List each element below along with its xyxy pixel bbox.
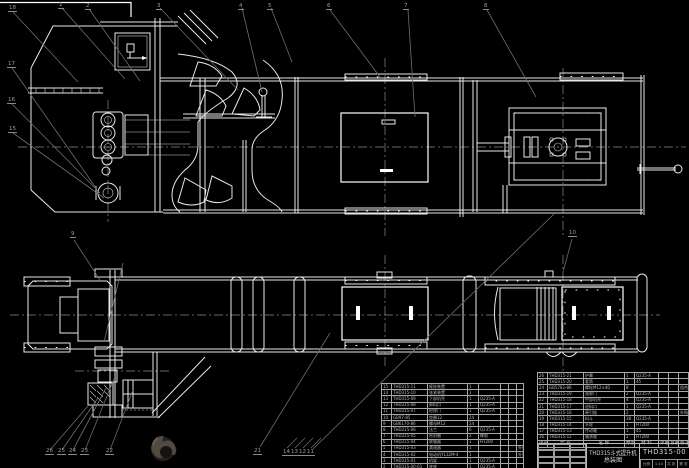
- meta-cell: 1:10: [652, 460, 664, 468]
- drawing-number: THD315-00: [640, 444, 689, 459]
- balloon-label: 2: [85, 4, 91, 10]
- bom-cell: [501, 464, 509, 468]
- bom-cell: 2: [382, 464, 392, 468]
- balloon-label: 10: [568, 231, 577, 237]
- head-drive-section: [460, 73, 682, 217]
- bom-table-left: 15THD315-11尾轮装置114THD315-10张紧装置113THD315…: [381, 383, 524, 468]
- drawing-title-cell: THD315斗式提升机 总装图: [586, 444, 640, 468]
- balloon-label: 6: [326, 4, 332, 10]
- revision-grid: [538, 444, 586, 468]
- balloon-label: 22: [105, 449, 114, 455]
- balloon-label: 26: [45, 449, 54, 455]
- head-section-plan: [485, 271, 623, 357]
- inlet-box: [115, 33, 150, 70]
- balloon-label: 17: [7, 62, 16, 68]
- balloon-label: 7: [403, 4, 409, 10]
- front-elevation-view: [18, 10, 686, 236]
- bom-cell: 1: [468, 464, 479, 468]
- balloon-label: 15: [8, 127, 17, 133]
- balloon-label: 11: [306, 450, 315, 456]
- meta-cell: 第 张: [677, 460, 689, 468]
- balloon-label: 3: [156, 4, 162, 10]
- inspection-door-front: [341, 74, 428, 214]
- bom-cell: [509, 464, 517, 468]
- bom-cell: Q235-A: [479, 464, 501, 468]
- balloon-label: 9: [70, 232, 76, 238]
- balloon-label: 24: [68, 449, 77, 455]
- sheet-name: 总装图: [604, 457, 623, 464]
- boot-casing: [28, 26, 163, 212]
- balloon-label: 18: [8, 6, 17, 12]
- balloon-label: 21: [253, 449, 262, 455]
- tower-walls: [53, 10, 218, 212]
- title-meta-row: 比例 1:10 共 张 第 张: [640, 459, 689, 468]
- meta-cell: 比例: [640, 460, 652, 468]
- stamp-logo: [151, 436, 176, 461]
- balloon-label: 5: [267, 4, 273, 10]
- meta-cell: 共 张: [665, 460, 677, 468]
- balloon-label: 23: [80, 449, 89, 455]
- bom-cell: [517, 464, 524, 468]
- balloon-label: 16: [7, 98, 16, 104]
- balloon-label: 8: [483, 4, 489, 10]
- product-name: THD315斗式提升机: [589, 450, 636, 457]
- title-block: THD315斗式提升机 总装图 THD315-00 比例 1:10 共 张 第 …: [537, 443, 689, 468]
- balloon-label: 4: [238, 4, 244, 10]
- bom-cell: THD315-00-01: [392, 464, 428, 468]
- drawing-number-cell: THD315-00 比例 1:10 共 张 第 张: [640, 444, 689, 468]
- balloon-label: 1: [58, 3, 64, 9]
- drive-unit-plan: [88, 352, 211, 418]
- balloon-label: 25: [57, 449, 66, 455]
- cad-drawing-canvas: 18 1 2 3 4 5 6 7 8 17 16 15 9 10 26 25 2…: [0, 0, 689, 468]
- tail-wheel-assembly: [93, 112, 190, 203]
- sheet-border: [0, 3, 131, 18]
- bom-table-right: 26THD315-21护罩1Q235-A25THD315-20套筒14524GB…: [537, 372, 689, 448]
- bom-cell: 底座: [428, 464, 468, 468]
